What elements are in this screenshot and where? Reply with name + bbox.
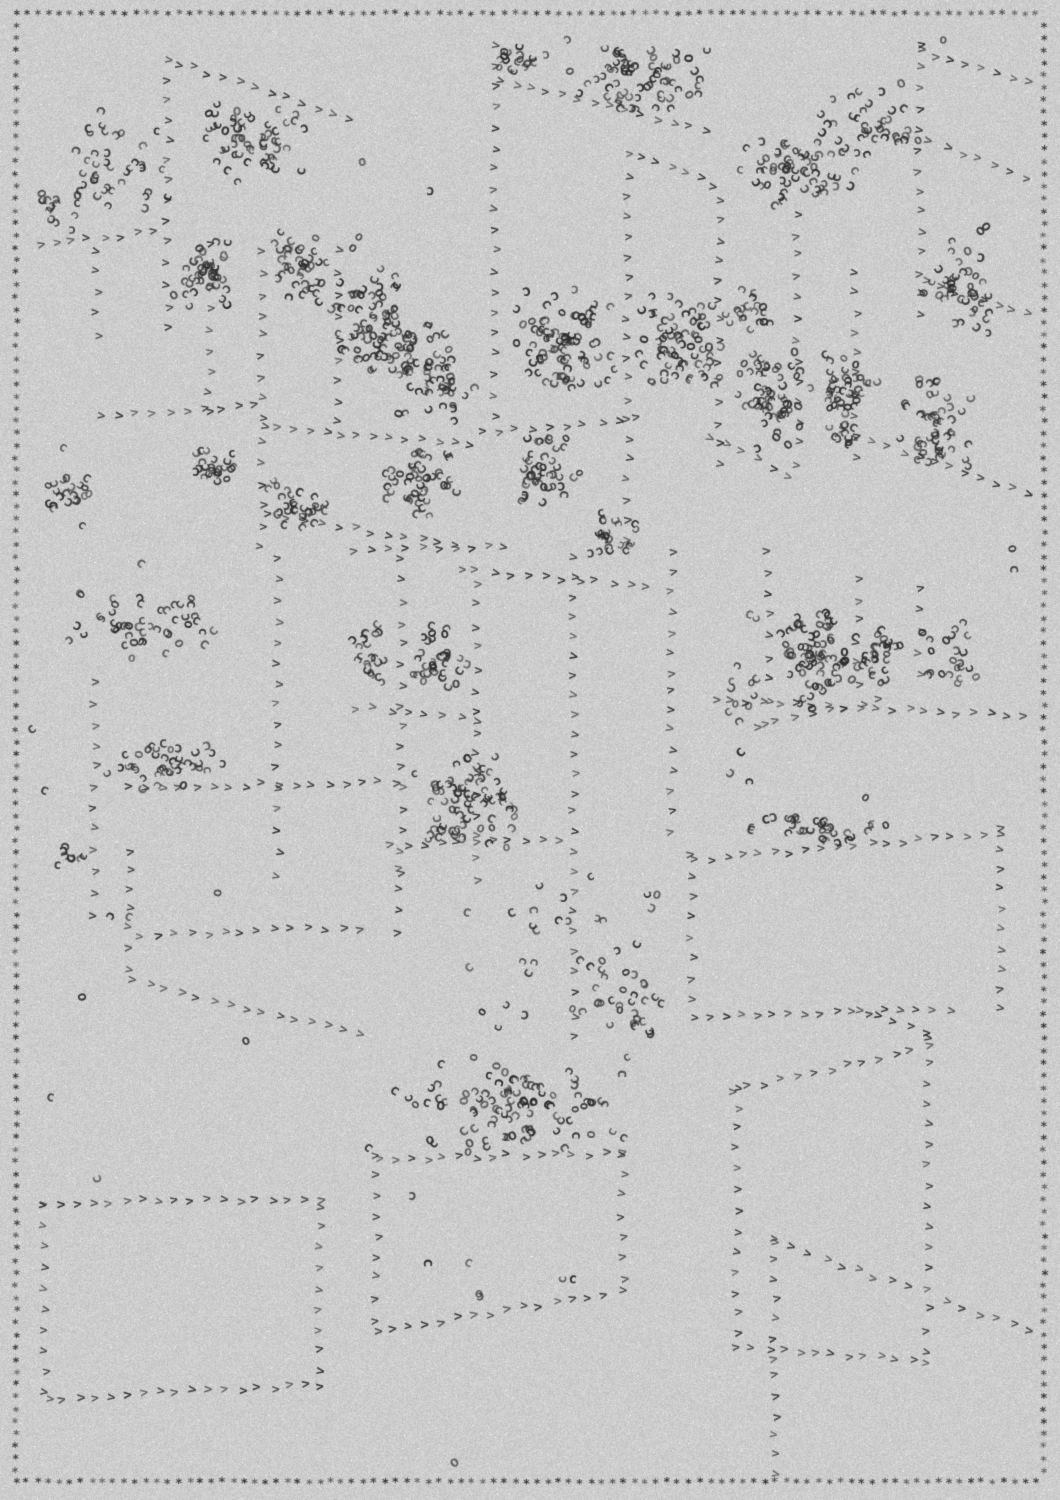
ascii-artwork-frame bbox=[0, 0, 1060, 1500]
ascii-art-canvas bbox=[0, 0, 1060, 1500]
